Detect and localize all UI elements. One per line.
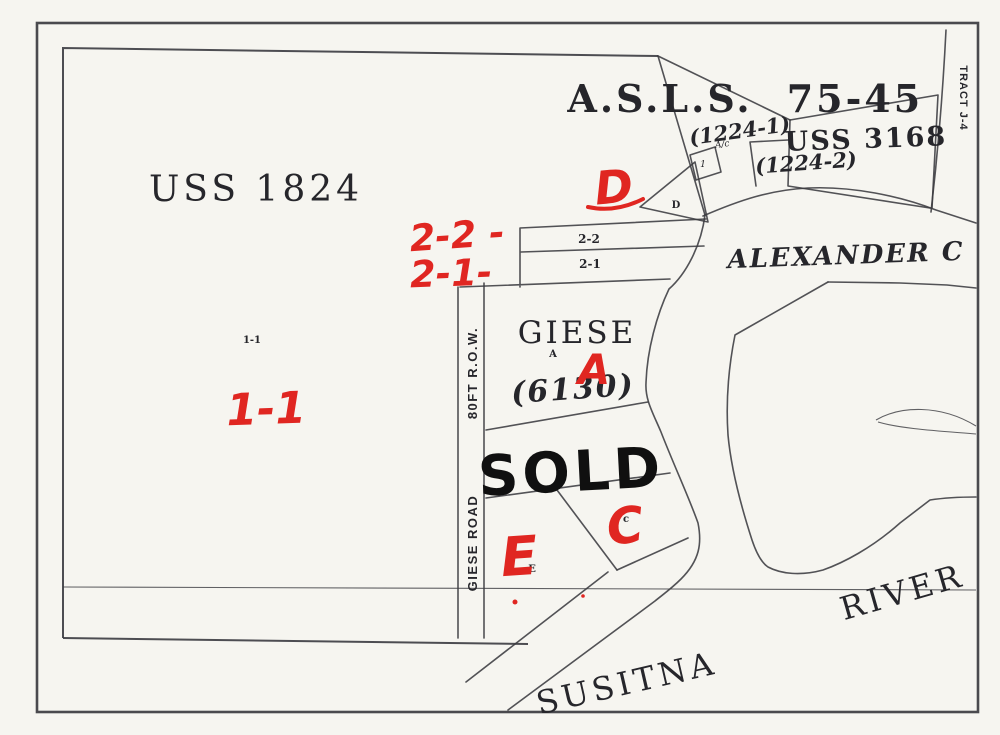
black-annotations: SOLD [477,435,666,510]
label-1-1-small: 1-1 [243,335,261,346]
label-susitna: SUSITNA [533,644,721,722]
island-slough [876,409,976,434]
label-river: RIVER [836,556,969,628]
red-note-2-1: 2-1- [409,251,493,297]
red-ink-speck [581,594,585,598]
label-asls: A.S.L.S. [566,76,752,121]
red-note-e: E [499,524,540,589]
label-a-small: A [548,349,557,360]
label-tract-j4: TRACT J-4 [957,65,969,130]
label-d-small: D [672,200,681,211]
label-1-small: 1 [700,160,706,170]
uss1824-parcel-bottom [63,638,528,644]
island-north-edge [828,282,976,288]
creek-north-bank [703,188,976,223]
label-ac-small: A/c [713,139,730,151]
red-note-a: A [575,345,611,394]
label-strip-2-1: 2-1 [579,257,601,271]
plat-map-scan: A.S.L.S. 75-45 (1224-1) A/c USS 3168 (12… [0,0,1000,735]
red-note-c: C [604,495,647,557]
map-canvas: A.S.L.S. 75-45 (1224-1) A/c USS 3168 (12… [0,0,1000,735]
label-6130: (6130) [510,368,636,412]
label-uss-1824: USS 1824 [149,169,363,210]
label-asls-number: 75-45 [787,76,924,121]
label-giese-road: GIESE ROAD [465,495,480,592]
marker-note-sold: SOLD [477,435,666,510]
label-strip-2-2: 2-2 [578,232,600,246]
island-outline [727,282,976,574]
label-1224-2: (1224-2) [754,146,857,178]
label-alexander-creek: ALEXANDER C [724,237,965,275]
label-giese-road-row: 80FT R.O.W. [465,327,480,419]
red-ink-speck [513,600,518,605]
red-note-1-1: 1-1 [226,383,307,437]
